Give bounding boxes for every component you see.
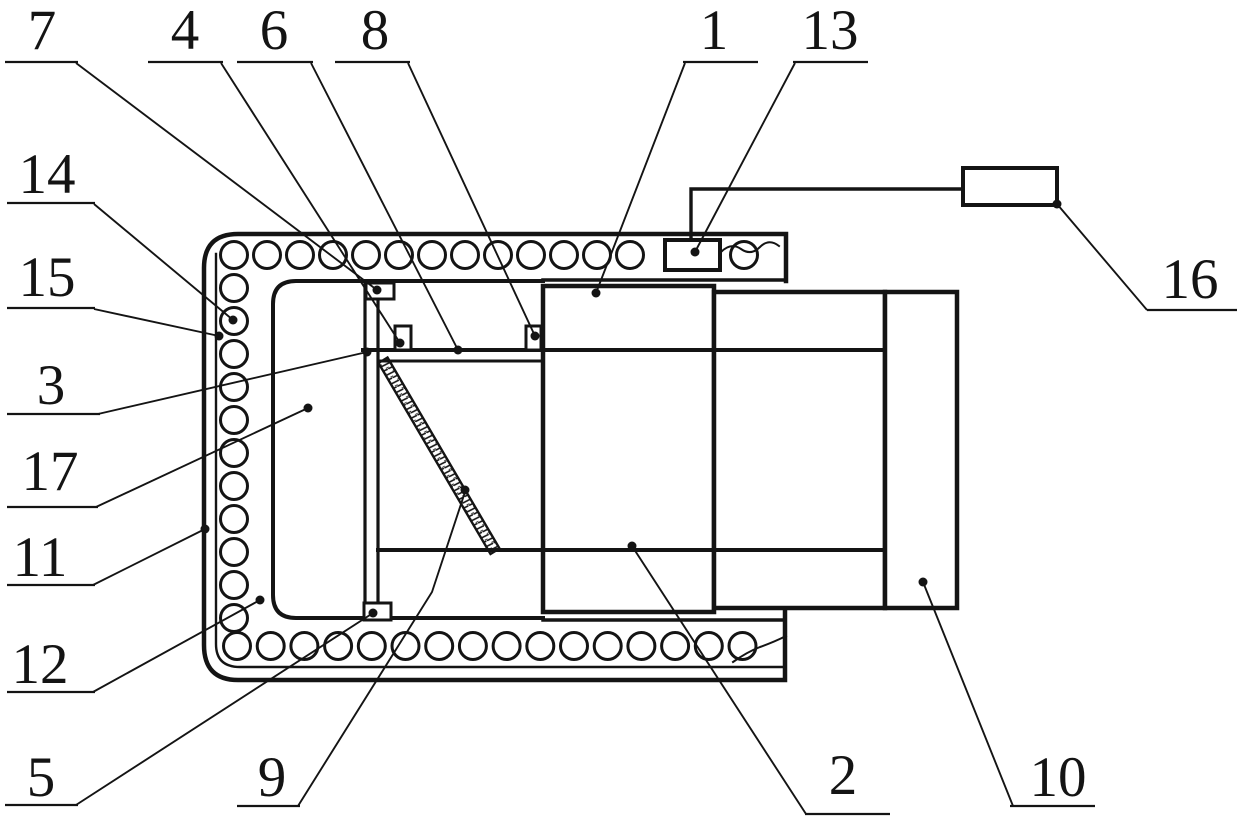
leader-line-6 <box>311 63 458 350</box>
coil-circle <box>221 407 248 434</box>
coil-circle <box>221 374 248 401</box>
leader-dot-17 <box>304 404 313 413</box>
coil-circle <box>662 633 689 660</box>
leader-dot-12 <box>256 596 265 605</box>
coil-circle <box>452 242 479 269</box>
coil-circle <box>224 633 251 660</box>
leader-line-9 <box>298 492 465 806</box>
leader-dot-15 <box>215 332 224 341</box>
leader-dot-1 <box>592 289 601 298</box>
leader-dot-16 <box>1053 200 1062 209</box>
leader-dot-6 <box>454 346 463 355</box>
ref-numeral-8: 8 <box>361 0 390 62</box>
coil-circle <box>221 506 248 533</box>
end-block <box>885 292 957 608</box>
coil-circle <box>257 633 284 660</box>
leader-dot-4 <box>396 339 405 348</box>
coil-circle <box>518 242 545 269</box>
ref-numeral-13: 13 <box>802 0 859 62</box>
coil-circle <box>221 242 248 269</box>
coil-circle <box>353 242 380 269</box>
leader-line-13 <box>695 63 795 252</box>
leader-dot-5 <box>369 609 378 618</box>
ref-numeral-9: 9 <box>258 746 287 809</box>
ref-numeral-10: 10 <box>1030 746 1087 809</box>
leader-dot-14 <box>229 316 238 325</box>
coil-circle <box>287 242 314 269</box>
ref-numeral-12: 12 <box>12 633 69 696</box>
leader-line-7 <box>76 63 377 290</box>
diagonal-hatched-rod <box>379 358 500 555</box>
leader-dot-2 <box>628 542 637 551</box>
coil-circle <box>358 633 385 660</box>
leader-line-11 <box>93 529 205 585</box>
coil-circle <box>459 633 486 660</box>
leader-dot-13 <box>691 248 700 257</box>
leader-dot-11 <box>201 525 210 534</box>
ref-numeral-14: 14 <box>19 143 76 206</box>
coil-circle <box>628 633 655 660</box>
coil-circle <box>426 633 453 660</box>
coil-circle <box>221 473 248 500</box>
leader-dot-3 <box>363 348 372 357</box>
coil-circle <box>221 539 248 566</box>
patent-figure-page: 7468113141531711125921016 <box>0 0 1240 817</box>
patent-figure: 7468113141531711125921016 <box>0 0 1240 817</box>
ref-numeral-7: 7 <box>28 0 57 62</box>
leader-dot-10 <box>919 578 928 587</box>
ref-numeral-3: 3 <box>37 354 66 417</box>
ref-numeral-15: 15 <box>19 246 76 309</box>
coil-circle <box>419 242 446 269</box>
leader-line-14 <box>94 204 233 320</box>
coil-circle <box>561 633 588 660</box>
coil-circle <box>221 341 248 368</box>
coil-circle <box>221 275 248 302</box>
ref-numeral-2: 2 <box>829 744 858 807</box>
ref-numeral-4: 4 <box>171 0 200 62</box>
leader-dot-9 <box>461 486 470 495</box>
ref-numeral-6: 6 <box>260 0 289 62</box>
external-box <box>963 168 1057 205</box>
leader-line-4 <box>221 63 400 343</box>
coil-circle <box>617 242 644 269</box>
coil-circle <box>221 572 248 599</box>
leader-line-15 <box>94 309 219 336</box>
ref-numeral-16: 16 <box>1162 248 1219 311</box>
coil-circle <box>392 633 419 660</box>
ref-numeral-11: 11 <box>13 526 68 589</box>
leader-dot-8 <box>531 332 540 341</box>
piston-mid-body <box>714 292 885 608</box>
leader-dot-7 <box>373 286 382 295</box>
ref-numeral-17: 17 <box>22 440 79 503</box>
coil-circle <box>594 633 621 660</box>
leader-line-3 <box>98 352 367 414</box>
leader-line-8 <box>408 63 535 336</box>
coil-circle <box>291 633 318 660</box>
ref-numeral-5: 5 <box>27 746 56 809</box>
coil-circle <box>493 633 520 660</box>
coil-circle <box>527 633 554 660</box>
plate-bottom-foot <box>364 603 391 620</box>
coil-circle <box>551 242 578 269</box>
coil-circle <box>254 242 281 269</box>
leader-line-10 <box>923 582 1013 806</box>
ref-numeral-1: 1 <box>700 0 729 62</box>
piston-head <box>543 286 714 612</box>
leader-line-16 <box>1057 204 1147 310</box>
coil-circle <box>695 633 722 660</box>
